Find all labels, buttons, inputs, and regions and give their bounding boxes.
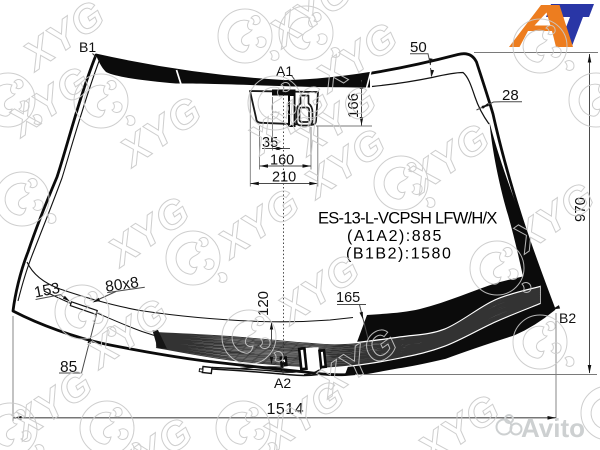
svg-text:Avito: Avito (521, 413, 585, 443)
svg-text:ES-13-L-VCPSH LFW/H/X: ES-13-L-VCPSH LFW/H/X (318, 210, 497, 228)
svg-text:(A1A2):885: (A1A2):885 (347, 228, 443, 245)
svg-text:B2: B2 (559, 310, 576, 326)
svg-text:120: 120 (255, 291, 272, 316)
svg-text:A2: A2 (274, 375, 291, 391)
svg-text:(B1B2):1580: (B1B2):1580 (346, 246, 452, 263)
